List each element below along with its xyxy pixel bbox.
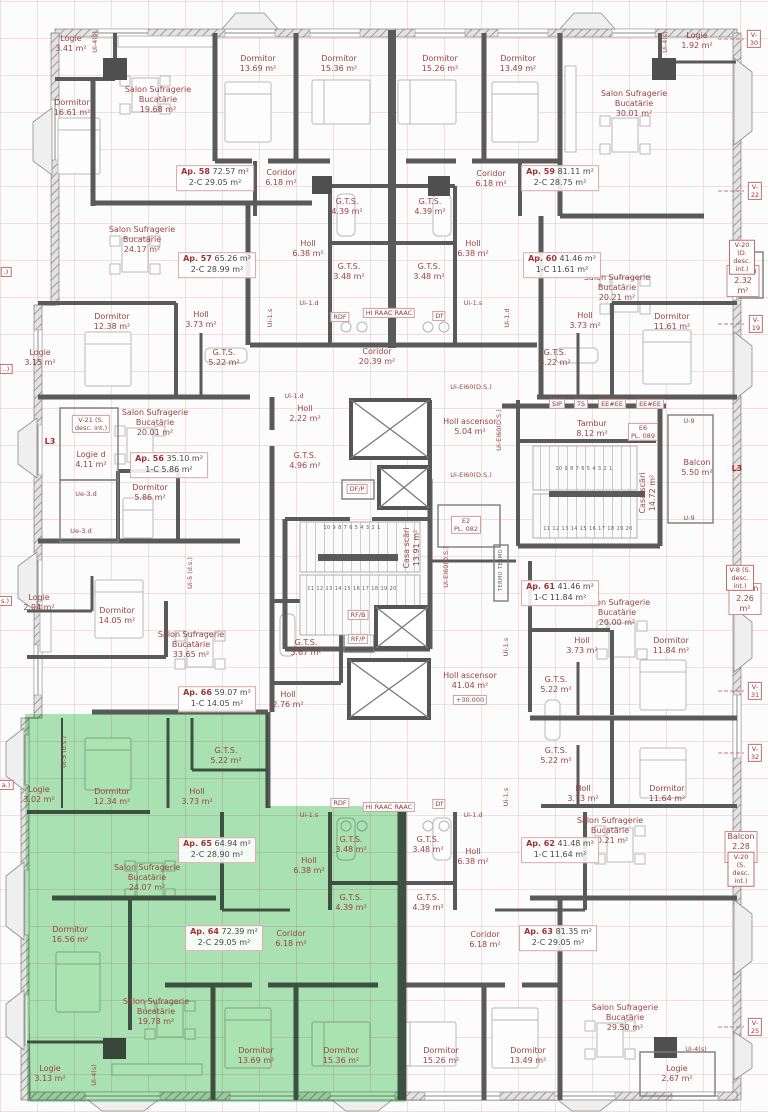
room-area: 5.22 m² <box>539 358 570 368</box>
apartment-type-area: 1-C 11.64 m² <box>526 850 594 861</box>
room-area: 2.76 m² <box>272 700 303 710</box>
room-area: 14.72 m² <box>648 472 658 513</box>
room-area: 41.04 m² <box>443 681 497 691</box>
room-label: Coridor6.18 m² <box>469 930 500 950</box>
tech-tag: TS <box>574 399 588 409</box>
room-name: Salon Sufragerie Bucatärie <box>109 225 175 245</box>
axis-label: V-19 <box>749 315 763 333</box>
room-name: G.T.S. <box>539 348 570 358</box>
room-name: Casa scări <box>402 527 412 568</box>
room-name: Salon Sufragerie Bucatärie <box>122 408 188 428</box>
apartment-label: Ap. 58 72.57 m²2-C 29.05 m² <box>176 165 254 191</box>
room-label: Holl ascensor5.04 m² <box>443 417 497 437</box>
room-name: Dormitor <box>510 1046 546 1056</box>
apartment-type-area: 1-C 11.84 m² <box>526 593 594 604</box>
room-name: Balcon <box>728 832 755 842</box>
room-area: 13.49 m² <box>500 64 536 74</box>
room-area: 30.01 m² <box>601 109 667 119</box>
room-label: Dormitor15.26 m² <box>423 1046 459 1066</box>
room-name: Dormitor <box>323 1046 359 1056</box>
room-area: 13.69 m² <box>238 1056 274 1066</box>
axis-label: s.) <box>0 596 12 606</box>
room-area: 20.39 m² <box>359 357 395 367</box>
tech-tag: Ue-3.d <box>75 490 96 498</box>
room-area: 11.64 m² <box>649 794 685 804</box>
room-area: 4.39 m² <box>414 207 445 217</box>
tech-tag: U-9 <box>683 417 694 425</box>
room-area: 15.26 m² <box>422 64 458 74</box>
apartment-label: Ap. 63 81.35 m²2-C 29.05 m² <box>519 925 597 951</box>
apartment-label: Ap. 57 65.26 m²2-C 28.99 m² <box>178 252 256 278</box>
room-name: Logie <box>661 1064 692 1074</box>
room-label: Salon Sufragerie Bucatärie24.07 m² <box>114 863 180 893</box>
room-name: Dormitor <box>653 636 689 646</box>
tech-tag: RDF <box>330 312 349 322</box>
room-area: 3.48 m² <box>335 845 366 855</box>
room-area: 14.05 m² <box>99 616 135 626</box>
room-label: Dormitor13.49 m² <box>510 1046 546 1066</box>
room-name: Holl <box>272 690 303 700</box>
apartment-type-area: 1-C 5.86 m² <box>135 465 203 476</box>
room-name: G.T.S. <box>335 893 366 903</box>
room-label: Dormitor16.61 m² <box>54 98 90 118</box>
room-area: 5.22 m² <box>540 685 571 695</box>
room-label: Salon Sufragerie Bucatärie30.01 m² <box>601 89 667 119</box>
tech-tag: EE#EE <box>598 399 626 409</box>
room-label: G.T.S.3.48 m² <box>413 262 444 282</box>
apartment-type-area: 1-C 11.61 m² <box>528 265 596 276</box>
room-area: 3.73 m² <box>567 794 598 804</box>
room-name: G.T.S. <box>290 638 321 648</box>
room-label: Casa scări14.72 m² <box>638 472 658 513</box>
room-area: 3.73 m² <box>569 321 600 331</box>
room-label: Dormitor15.36 m² <box>323 1046 359 1066</box>
tech-tag: Ui-4(s) <box>685 1045 707 1053</box>
room-area: 4.39 m² <box>412 903 443 913</box>
room-label: Logie2.94 m² <box>23 593 54 613</box>
room-area: 13.91 m² <box>412 527 422 568</box>
room-name: G.T.S. <box>540 746 571 756</box>
room-label: G.T.S.5.22 m² <box>540 746 571 766</box>
room-area: 20.01 m² <box>122 428 188 438</box>
room-name: Dormitor <box>94 312 130 322</box>
room-name: Coridor <box>275 929 306 939</box>
room-label: Holl3.73 m² <box>569 311 600 331</box>
room-name: Logie <box>24 348 55 358</box>
tech-tag: RF/P <box>348 634 368 644</box>
room-name: G.T.S. <box>335 835 366 845</box>
axis-label: V-20 (S. desc. int.) <box>728 852 755 887</box>
tech-tag: U-9 <box>683 514 694 522</box>
floor-plan: Logie3.41 m²Dormitor16.61 m²Salon Sufrag… <box>0 0 768 1112</box>
room-label: Logie2.67 m² <box>661 1064 692 1084</box>
room-area: 16.61 m² <box>54 108 90 118</box>
room-area: 20.00 m² <box>584 618 650 628</box>
apartment-id-total: Ap. 59 81.11 m² <box>526 167 594 178</box>
room-label: Coridor6.18 m² <box>475 169 506 189</box>
room-area: 6.38 m² <box>293 866 324 876</box>
room-label: G.T.S.3.48 m² <box>335 835 366 855</box>
room-label: Holl2.22 m² <box>289 404 320 424</box>
room-name: G.T.S. <box>413 262 444 272</box>
room-name: Tambur <box>576 419 607 429</box>
room-name: Holl <box>457 239 488 249</box>
room-name: Salon Sufragerie Bucatärie <box>125 85 191 105</box>
room-area: 6.38 m² <box>292 249 323 259</box>
room-name: Holl <box>289 404 320 414</box>
tech-tag: SIP <box>549 399 565 409</box>
tech-tag: Ui-EI60(D.S.) <box>450 471 492 479</box>
room-label: G.T.S.4.39 m² <box>335 893 366 913</box>
room-area: 3.48 m² <box>412 845 443 855</box>
apartment-label: Ap. 62 41.48 m²1-C 11.64 m² <box>521 837 599 863</box>
room-area: 5.67 m² <box>290 648 321 658</box>
tech-tag: Ui-1.d <box>463 811 482 819</box>
tech-tag: Ui-1.s <box>502 638 510 657</box>
apartment-id-total: Ap. 62 41.48 m² <box>526 839 594 850</box>
apartment-label: Ap. 59 81.11 m²2-C 28.75 m² <box>521 165 599 191</box>
tech-tag: Ui-1.d <box>503 308 511 327</box>
room-label: G.T.S.5.22 m² <box>540 675 571 695</box>
room-label: G.T.S.5.22 m² <box>210 746 241 766</box>
room-area: 5.04 m² <box>443 427 497 437</box>
room-area: 4.96 m² <box>289 461 320 471</box>
room-name: Holl <box>185 310 216 320</box>
apartment-id-total: Ap. 60 41.46 m² <box>528 254 596 265</box>
room-area: 13.69 m² <box>240 64 276 74</box>
room-label: G.T.S.5.22 m² <box>539 348 570 368</box>
tech-tag: Ui-1.s <box>464 299 483 307</box>
axis-label: V-31 <box>748 682 762 700</box>
room-area: 4.39 m² <box>331 207 362 217</box>
room-label: Holl3.73 m² <box>566 636 597 656</box>
room-area: 2.94 m² <box>23 603 54 613</box>
room-area: 12.38 m² <box>94 322 130 332</box>
axis-label: V-25 <box>748 1018 762 1036</box>
room-area: 3.48 m² <box>333 272 364 282</box>
room-name: Holl <box>457 847 488 857</box>
room-name: Dormitor <box>422 54 458 64</box>
room-area: 3.15 m² <box>24 358 55 368</box>
room-name: Dormitor <box>654 312 690 322</box>
room-area: 3.02 m² <box>23 795 54 805</box>
apartment-label: Ap. 64 72.39 m²2-C 29.05 m² <box>185 925 263 951</box>
room-name: Logie <box>55 34 86 44</box>
room-area: 16.56 m² <box>52 935 88 945</box>
room-name: G.T.S. <box>331 197 362 207</box>
tech-tag: E6 PL. 089 <box>628 423 658 441</box>
room-name: Coridor <box>359 347 395 357</box>
axis-label: ..) <box>0 364 12 374</box>
room-area: 2.32 m² <box>730 276 757 296</box>
room-label: Holl ascensor41.04 m² <box>443 671 497 691</box>
room-label: G.T.S.3.48 m² <box>333 262 364 282</box>
room-area: 5.86 m² <box>132 493 168 503</box>
room-label: Dormitor16.56 m² <box>52 925 88 945</box>
room-name: Dormitor <box>132 483 168 493</box>
apartment-label: Ap. 60 41.46 m²1-C 11.61 m² <box>523 252 601 278</box>
room-name: G.T.S. <box>412 893 443 903</box>
room-name: Holl <box>569 311 600 321</box>
room-area: 1.92 m² <box>681 41 712 51</box>
room-label: Dormitor14.05 m² <box>99 606 135 626</box>
room-label: Holl3.73 m² <box>181 787 212 807</box>
room-label: Tambur8.12 m² <box>576 419 607 439</box>
tech-tag: Ui-EI60(D.S.) <box>442 546 450 588</box>
axis-label: .) <box>1 267 12 277</box>
room-name: Dormitor <box>52 925 88 935</box>
room-name: Logie <box>34 1064 65 1074</box>
room-area: 2.26 m² <box>732 594 759 614</box>
apartment-type-area: 2-C 29.05 m² <box>524 938 592 949</box>
room-label: G.T.S.4.39 m² <box>331 197 362 217</box>
tech-tag: Ui-1.s <box>266 309 274 328</box>
apartment-type-area: 2-C 28.90 m² <box>183 850 251 861</box>
room-name: Dormitor <box>54 98 90 108</box>
axis-label: V-30 <box>747 30 761 48</box>
room-name: G.T.S. <box>412 835 443 845</box>
apartment-label: Ap. 56 35.10 m²1-C 5.86 m² <box>130 452 208 478</box>
room-label: G.T.S.4.39 m² <box>414 197 445 217</box>
room-area: 11.61 m² <box>654 322 690 332</box>
room-area: 2.22 m² <box>289 414 320 424</box>
apartment-label: Ap. 65 64.94 m²2-C 28.90 m² <box>178 837 256 863</box>
tech-tag: Df <box>432 799 445 809</box>
room-name: Dormitor <box>321 54 357 64</box>
room-label: Logie3.02 m² <box>23 785 54 805</box>
room-label: Salon Sufragerie Bucatärie33.65 m² <box>158 630 224 660</box>
room-label: Dormitor15.26 m² <box>422 54 458 74</box>
room-name: Logie d <box>75 450 106 460</box>
room-label: Dormitor5.86 m² <box>132 483 168 503</box>
room-label: Dormitor12.34 m² <box>94 787 130 807</box>
tech-tag: +30.000 <box>453 695 487 705</box>
room-name: Dormitor <box>238 1046 274 1056</box>
room-name: Dormitor <box>99 606 135 616</box>
room-name: Holl <box>293 856 324 866</box>
tech-tag: Ui-4(s) <box>661 31 669 53</box>
tech-tag: L3 <box>732 464 743 474</box>
room-label: Coridor6.18 m² <box>275 929 306 949</box>
room-name: Salon Sufragerie Bucatärie <box>592 1003 658 1023</box>
room-area: 12.34 m² <box>94 797 130 807</box>
room-label: Logie3.13 m² <box>34 1064 65 1084</box>
apartment-label: Ap. 61 41.46 m²1-C 11.84 m² <box>521 580 599 606</box>
room-area: 4.11 m² <box>75 460 106 470</box>
room-area: 24.17 m² <box>109 245 175 255</box>
room-name: G.T.S. <box>208 348 239 358</box>
room-area: 3.13 m² <box>34 1074 65 1084</box>
tech-tag: EE#EE <box>636 399 664 409</box>
tech-tag: TERMO TERMO <box>498 549 504 591</box>
room-area: 3.48 m² <box>413 272 444 282</box>
room-area: 5.22 m² <box>210 756 241 766</box>
apartment-type-area: 2-C 28.99 m² <box>183 265 251 276</box>
room-label: G.T.S.4.96 m² <box>289 451 320 471</box>
axis-label: V-20 (D. desc. int.) <box>729 240 755 275</box>
room-area: 3.73 m² <box>185 320 216 330</box>
labels-layer: Logie3.41 m²Dormitor16.61 m²Salon Sufrag… <box>0 0 768 1112</box>
room-area: 3.41 m² <box>55 44 86 54</box>
room-label: Holl6.38 m² <box>457 239 488 259</box>
room-area: 8.12 m² <box>576 429 607 439</box>
tech-tag: V-21 (S. desc. int.) <box>72 415 110 433</box>
tech-tag: Ui-5 (d.s.) <box>186 557 194 589</box>
room-name: Holl <box>292 239 323 249</box>
tech-tag: Ui-1.s <box>300 811 319 819</box>
room-area: 19.78 m² <box>123 1017 189 1027</box>
room-label: Dormitor12.38 m² <box>94 312 130 332</box>
room-area: 2.67 m² <box>661 1074 692 1084</box>
room-area: 15.26 m² <box>423 1056 459 1066</box>
room-name: Holl <box>181 787 212 797</box>
room-area: 6.18 m² <box>469 940 500 950</box>
room-area: 13.49 m² <box>510 1056 546 1066</box>
room-area: 19.68 m² <box>125 105 191 115</box>
room-label: G.T.S.4.39 m² <box>412 893 443 913</box>
apartment-id-total: Ap. 56 35.10 m² <box>135 454 203 465</box>
room-name: G.T.S. <box>333 262 364 272</box>
room-label: Salon Sufragerie Bucatärie24.17 m² <box>109 225 175 255</box>
room-area: 6.18 m² <box>265 178 296 188</box>
room-area: 6.18 m² <box>475 179 506 189</box>
tech-tag: Ui-5 (d.s.) <box>60 736 68 768</box>
room-area: 6.38 m² <box>457 249 488 259</box>
room-label: Holl2.76 m² <box>272 690 303 710</box>
room-name: Salon Sufragerie Bucatärie <box>158 630 224 650</box>
tech-tag: Ui-EI60(D.S.) <box>450 383 492 391</box>
room-name: Coridor <box>265 168 296 178</box>
room-label: G.T.S.5.22 m² <box>208 348 239 368</box>
room-name: Salon Sufragerie Bucatärie <box>123 997 189 1017</box>
tech-tag: HI RAAC RAAC <box>363 308 415 318</box>
room-area: 5.22 m² <box>208 358 239 368</box>
room-label: Dormitor15.36 m² <box>321 54 357 74</box>
room-area: 4.39 m² <box>335 903 366 913</box>
apartment-type-area: 2-C 29.05 m² <box>181 178 249 189</box>
room-label: Dormitor11.84 m² <box>653 636 689 656</box>
room-label: G.T.S.5.67 m² <box>290 638 321 658</box>
room-label: Salon Sufragerie Bucatärie19.78 m² <box>123 997 189 1027</box>
room-name: Logie <box>23 785 54 795</box>
tech-tag: RDF <box>330 798 349 808</box>
room-label: Salon Sufragerie Bucatärie19.68 m² <box>125 85 191 115</box>
apartment-type-area: 2-C 29.05 m² <box>190 938 258 949</box>
tech-tag: DF/P <box>347 484 368 494</box>
room-label: Logie3.41 m² <box>55 34 86 54</box>
tech-tag: Ui-1.s <box>502 788 510 807</box>
room-label: Logie3.15 m² <box>24 348 55 368</box>
room-area: 6.18 m² <box>275 939 306 949</box>
room-name: Dormitor <box>423 1046 459 1056</box>
room-area: 24.07 m² <box>114 883 180 893</box>
tech-tag: Ue-3.d <box>70 527 91 535</box>
apartment-id-total: Ap. 58 72.57 m² <box>181 167 249 178</box>
room-name: G.T.S. <box>540 675 571 685</box>
room-label: Dormitor13.69 m² <box>240 54 276 74</box>
tech-tag: Ui-EI60(D.S.) <box>495 409 503 451</box>
apartment-type-area: 2-C 28.75 m² <box>526 178 594 189</box>
axis-label: V-22 <box>748 182 762 200</box>
room-name: G.T.S. <box>414 197 445 207</box>
room-name: Casa scări <box>638 472 648 513</box>
axis-label: V-32 <box>748 744 762 762</box>
tech-tag: 10 9 8 7 6 5 4 3 2 1 <box>555 466 612 472</box>
tech-tag: L3 <box>45 437 56 447</box>
apartment-id-total: Ap. 66 59.07 m² <box>183 688 251 699</box>
apartment-id-total: Ap. 63 81.35 m² <box>524 927 592 938</box>
room-area: 3.73 m² <box>566 646 597 656</box>
room-name: Holl <box>567 784 598 794</box>
room-name: Dormitor <box>500 54 536 64</box>
room-area: 11.84 m² <box>653 646 689 656</box>
room-name: Logie <box>681 31 712 41</box>
room-label: Dormitor13.69 m² <box>238 1046 274 1066</box>
tech-tag: HI RAAC RAAC <box>363 802 415 812</box>
room-area: 15.36 m² <box>321 64 357 74</box>
room-label: Logie d4.11 m² <box>75 450 106 470</box>
tech-tag: E2 PL. 082 <box>451 516 481 534</box>
tech-tag: 11 12 13 14 15 16 17 18 19 20 <box>307 586 397 592</box>
axis-label: V-8 (S. desc. int.) <box>726 565 754 591</box>
room-label: G.T.S.3.48 m² <box>412 835 443 855</box>
tech-tag: Ui-1.d <box>299 299 318 307</box>
room-name: Salon Sufragerie Bucatärie <box>577 816 643 836</box>
room-label: Holl6.38 m² <box>457 847 488 867</box>
apartment-id-total: Ap. 61 41.46 m² <box>526 582 594 593</box>
room-label: Holl3.73 m² <box>185 310 216 330</box>
room-name: G.T.S. <box>289 451 320 461</box>
room-label: Dormitor11.61 m² <box>654 312 690 332</box>
room-name: Logie <box>23 593 54 603</box>
apartment-type-area: 1-C 14.05 m² <box>183 699 251 710</box>
tech-tag: Ui-4(s) <box>90 1064 98 1086</box>
room-name: Holl <box>566 636 597 646</box>
room-label: Logie1.92 m² <box>681 31 712 51</box>
room-area: 15.36 m² <box>323 1056 359 1066</box>
room-name: Holl ascensor <box>443 417 497 427</box>
room-label: Dormitor13.49 m² <box>500 54 536 74</box>
tech-tag: 10 9 8 7 6 5 4 3 2 1 <box>323 525 380 531</box>
room-label: Dormitor11.64 m² <box>649 784 685 804</box>
room-area: 5.50 m² <box>681 468 712 478</box>
axis-label: a.) <box>0 780 13 790</box>
room-name: Dormitor <box>240 54 276 64</box>
room-name: Dormitor <box>649 784 685 794</box>
room-name: Salon Sufragerie Bucatärie <box>114 863 180 883</box>
tech-tag: RF/B <box>348 610 369 620</box>
room-area: 3.73 m² <box>181 797 212 807</box>
tech-tag: 11 12 13 14 15 16 17 18 19 20 <box>543 526 633 532</box>
room-area: 29.50 m² <box>592 1023 658 1033</box>
room-name: Coridor <box>469 930 500 940</box>
tech-tag: Df <box>432 311 445 321</box>
tech-tag: Ui-1.d <box>284 392 303 400</box>
room-name: Coridor <box>475 169 506 179</box>
room-label: Holl6.38 m² <box>292 239 323 259</box>
room-label: Casa scări13.91 m² <box>402 527 422 568</box>
room-name: G.T.S. <box>210 746 241 756</box>
room-label: Holl6.38 m² <box>293 856 324 876</box>
tech-tag: Ui-4(s) <box>91 31 99 53</box>
apartment-id-total: Ap. 64 72.39 m² <box>190 927 258 938</box>
apartment-label: Ap. 66 59.07 m²1-C 14.05 m² <box>178 686 256 712</box>
room-area: 33.65 m² <box>158 650 224 660</box>
room-name: Salon Sufragerie Bucatärie <box>601 89 667 109</box>
room-label: Salon Sufragerie Bucatärie29.50 m² <box>592 1003 658 1033</box>
room-name: Balcon <box>681 458 712 468</box>
room-label: Holl3.73 m² <box>567 784 598 804</box>
